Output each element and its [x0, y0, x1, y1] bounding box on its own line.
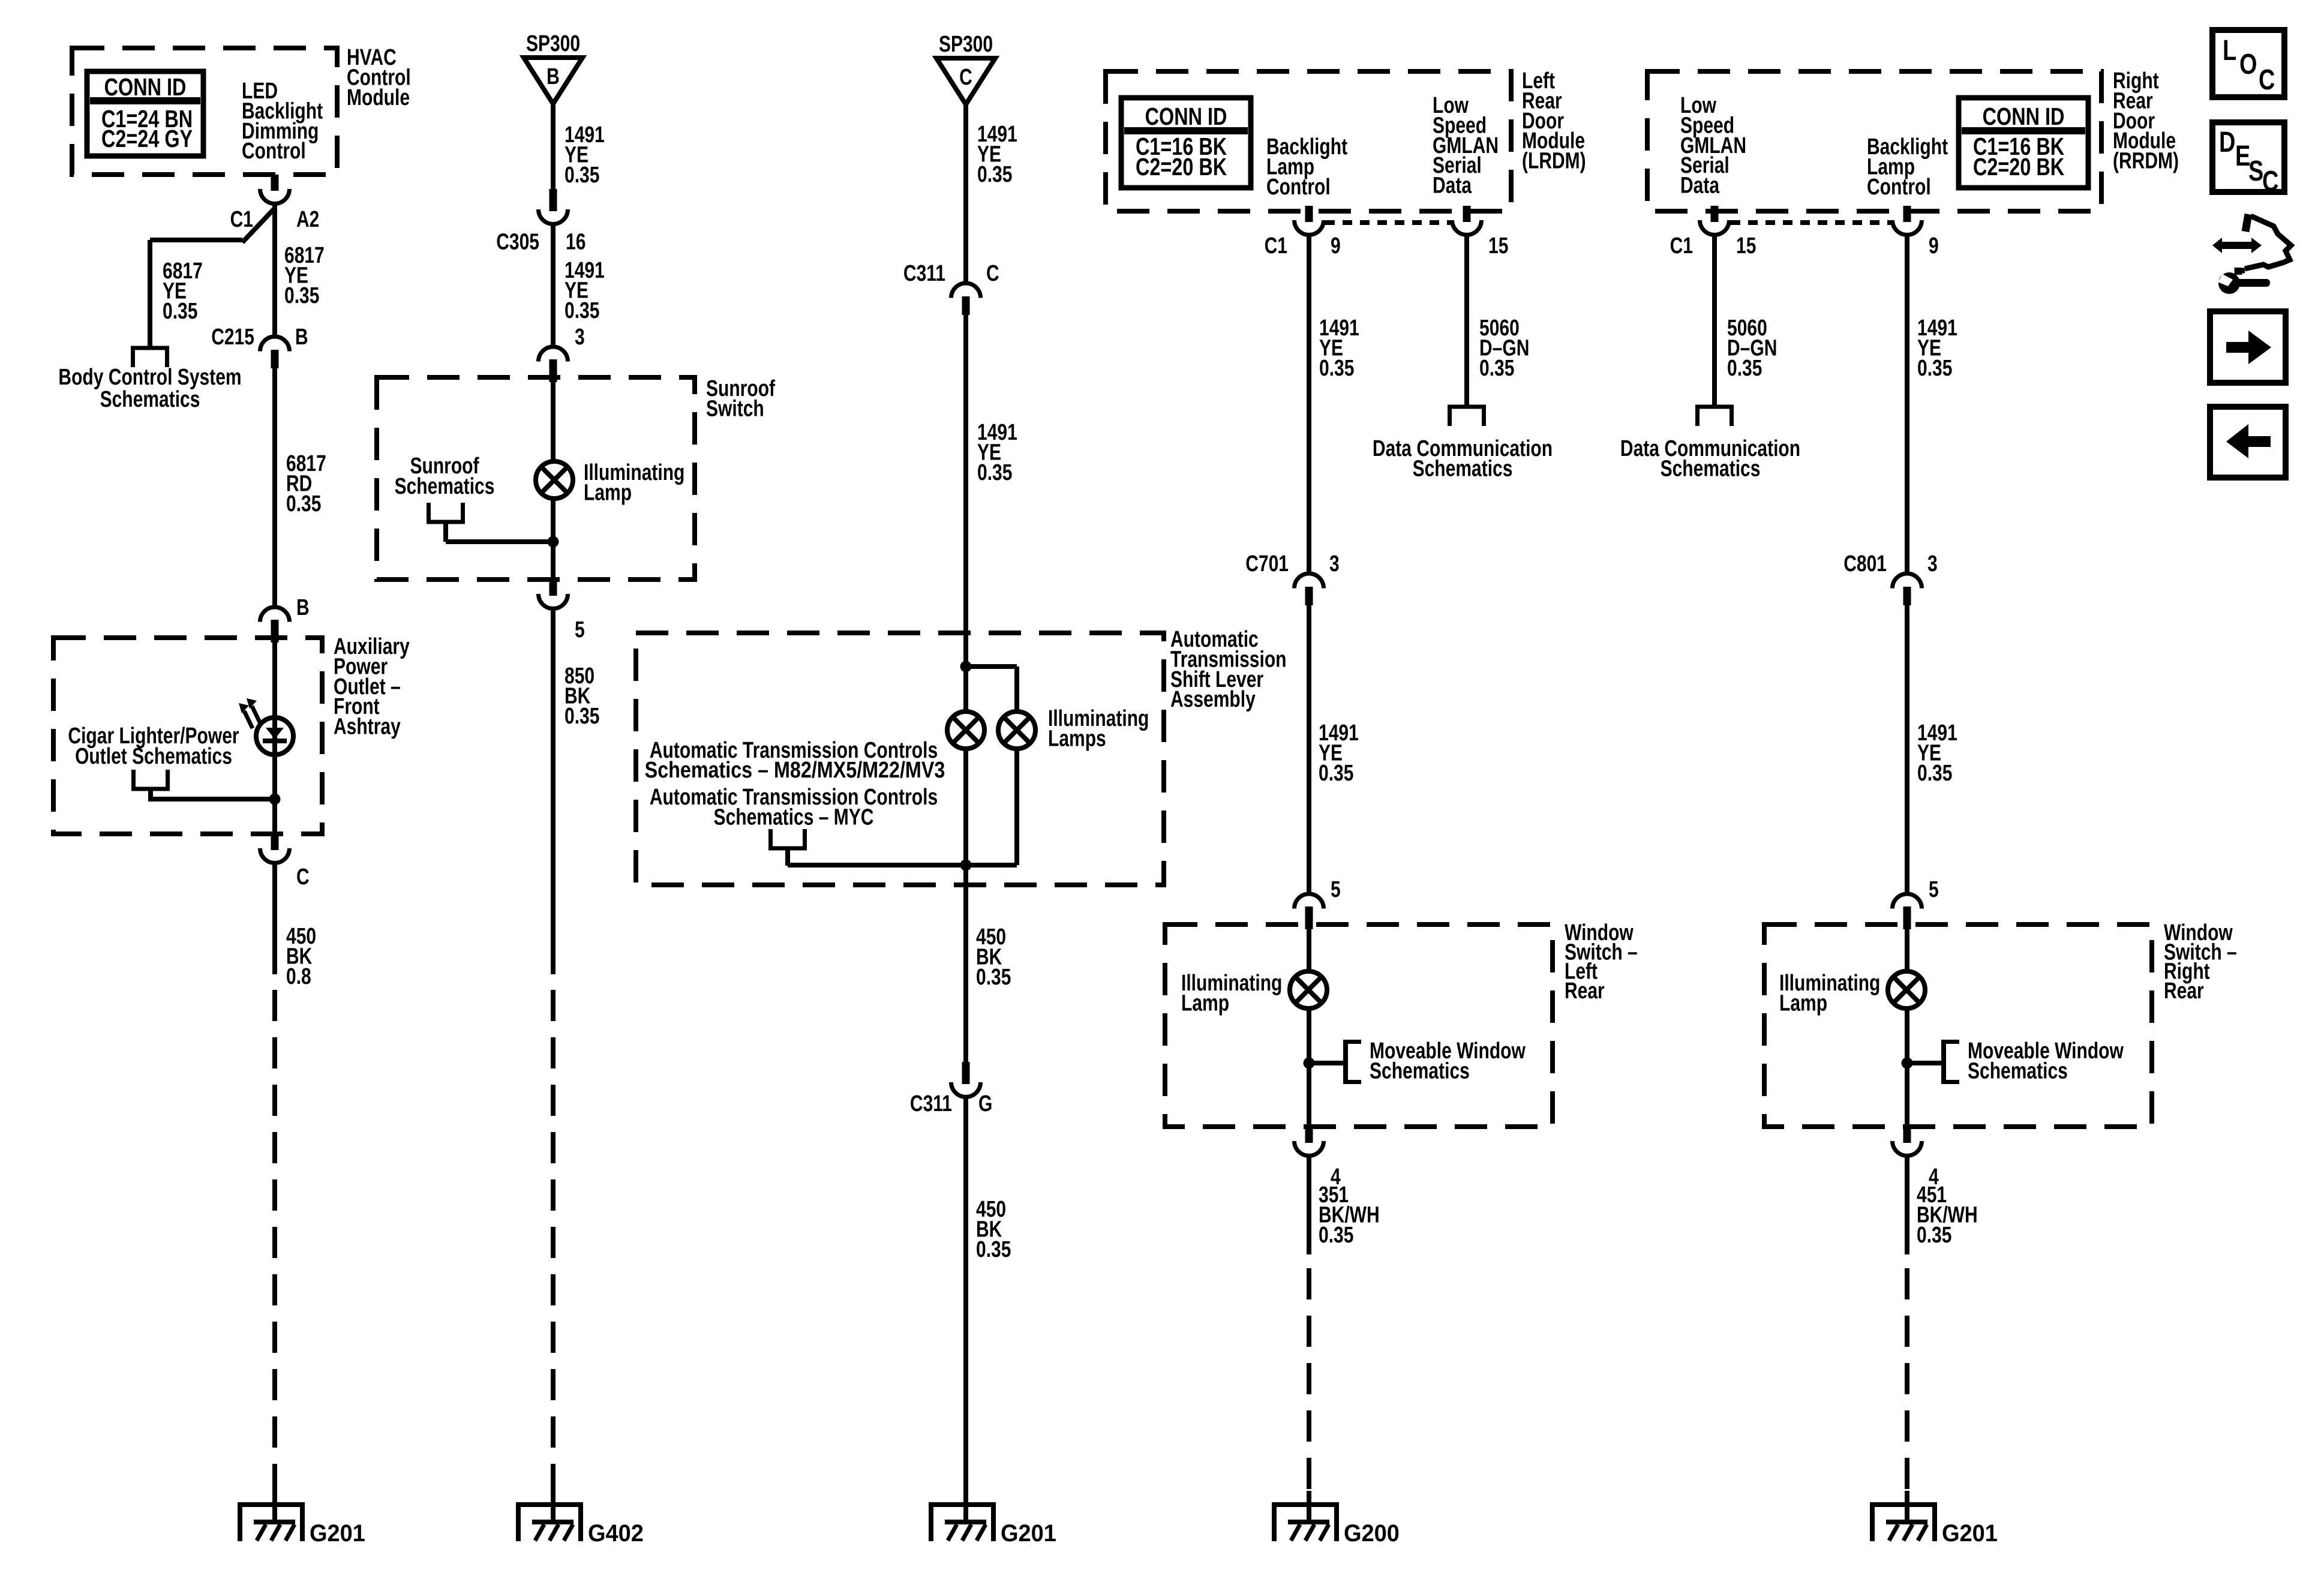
- svg-text:Schematics: Schematics: [395, 474, 495, 499]
- svg-text:0.35: 0.35: [1917, 356, 1952, 381]
- svg-text:3: 3: [1329, 551, 1340, 577]
- svg-text:O: O: [2239, 49, 2257, 80]
- svg-text:Schematics – M82/MX5/M22/MV3: Schematics – M82/MX5/M22/MV3: [645, 758, 945, 783]
- svg-text:Schematics: Schematics: [1413, 456, 1513, 481]
- svg-text:Schematics: Schematics: [1968, 1058, 2068, 1083]
- svg-text:0.35: 0.35: [976, 1237, 1011, 1262]
- svg-text:C1: C1: [1670, 233, 1693, 259]
- svg-text:A2: A2: [296, 207, 319, 232]
- svg-text:CONN ID: CONN ID: [1983, 103, 2065, 130]
- svg-text:5: 5: [1331, 877, 1341, 902]
- svg-text:0.35: 0.35: [976, 965, 1011, 990]
- svg-text:Rear: Rear: [2164, 978, 2204, 1004]
- svg-text:S: S: [2248, 155, 2263, 187]
- svg-text:0.35: 0.35: [565, 298, 599, 323]
- svg-text:Rear: Rear: [1565, 978, 1605, 1004]
- svg-text:0.35: 0.35: [977, 162, 1012, 187]
- svg-text:Data: Data: [1680, 173, 1720, 198]
- svg-text:0.35: 0.35: [565, 704, 599, 729]
- svg-text:G402: G402: [588, 1520, 644, 1547]
- svg-text:0.35: 0.35: [163, 299, 197, 324]
- svg-text:Lamp: Lamp: [1181, 990, 1229, 1016]
- svg-text:9: 9: [1929, 233, 1939, 259]
- svg-text:B: B: [547, 64, 560, 89]
- svg-text:0.35: 0.35: [286, 491, 321, 517]
- svg-text:0.35: 0.35: [1727, 356, 1762, 381]
- svg-text:15: 15: [1488, 233, 1508, 259]
- svg-text:C701: C701: [1245, 551, 1289, 577]
- svg-text:9: 9: [1331, 233, 1341, 259]
- svg-text:0.35: 0.35: [1479, 356, 1514, 381]
- svg-text:Lamp: Lamp: [1779, 990, 1827, 1016]
- svg-text:Outlet Schematics: Outlet Schematics: [75, 744, 232, 769]
- svg-text:Data: Data: [1433, 173, 1472, 198]
- svg-text:C1: C1: [1265, 233, 1287, 259]
- svg-text:C1: C1: [230, 207, 253, 232]
- svg-text:CONN ID: CONN ID: [1145, 103, 1227, 130]
- svg-text:(RRDM): (RRDM): [2113, 148, 2179, 173]
- svg-text:15: 15: [1736, 233, 1756, 259]
- svg-text:C2=20 BK: C2=20 BK: [1136, 153, 1227, 180]
- svg-text:Schematics: Schematics: [1661, 456, 1761, 481]
- svg-text:CONN ID: CONN ID: [104, 73, 187, 100]
- svg-text:Switch: Switch: [706, 396, 764, 421]
- svg-text:C2=20 BK: C2=20 BK: [1973, 153, 2064, 180]
- svg-text:G: G: [978, 1091, 992, 1116]
- svg-text:Control: Control: [1867, 175, 1931, 200]
- svg-text:3: 3: [1927, 551, 1938, 577]
- svg-text:0.35: 0.35: [1319, 761, 1353, 786]
- svg-text:Assembly: Assembly: [1170, 687, 1256, 712]
- svg-text:C: C: [959, 65, 972, 90]
- svg-text:Lamp: Lamp: [584, 480, 632, 505]
- svg-text:C: C: [2262, 166, 2278, 197]
- svg-text:G201: G201: [1001, 1520, 1056, 1547]
- svg-text:0.35: 0.35: [565, 163, 599, 188]
- svg-text:0.35: 0.35: [1319, 356, 1354, 381]
- svg-text:Lamps: Lamps: [1048, 726, 1106, 751]
- svg-text:C: C: [2259, 64, 2275, 96]
- svg-text:0.35: 0.35: [284, 283, 319, 308]
- svg-text:SP300: SP300: [939, 32, 993, 57]
- svg-text:G200: G200: [1344, 1520, 1400, 1547]
- svg-text:Schematics: Schematics: [100, 387, 200, 412]
- svg-text:0.35: 0.35: [1319, 1223, 1353, 1248]
- svg-text:C311: C311: [903, 261, 945, 286]
- svg-text:Schematics – MYC: Schematics – MYC: [714, 804, 874, 830]
- svg-text:C305: C305: [496, 229, 539, 254]
- svg-text:3: 3: [575, 325, 585, 350]
- svg-text:C2=24 GY: C2=24 GY: [101, 125, 193, 152]
- svg-text:C: C: [986, 261, 999, 286]
- svg-text:Ashtray: Ashtray: [334, 714, 401, 739]
- svg-text:Body Control System: Body Control System: [58, 365, 241, 390]
- svg-text:Module: Module: [347, 85, 410, 110]
- svg-text:C311: C311: [910, 1091, 952, 1116]
- svg-text:C: C: [296, 864, 310, 890]
- svg-text:C215: C215: [211, 325, 254, 350]
- svg-text:(LRDM): (LRDM): [1522, 148, 1586, 173]
- svg-text:0.8: 0.8: [286, 964, 311, 989]
- svg-text:L: L: [2223, 35, 2236, 67]
- svg-text:C801: C801: [1843, 551, 1887, 577]
- svg-text:Schematics: Schematics: [1370, 1058, 1470, 1083]
- svg-text:G201: G201: [310, 1520, 365, 1547]
- svg-text:D: D: [2219, 127, 2235, 158]
- svg-text:B: B: [295, 325, 308, 350]
- svg-text:SP300: SP300: [526, 31, 580, 56]
- svg-text:5: 5: [575, 617, 585, 643]
- svg-text:0.35: 0.35: [1917, 761, 1952, 786]
- svg-text:B: B: [296, 595, 310, 620]
- svg-text:G201: G201: [1942, 1520, 1998, 1547]
- svg-text:Control: Control: [1266, 175, 1331, 200]
- svg-text:16: 16: [566, 229, 585, 254]
- svg-text:0.35: 0.35: [977, 460, 1012, 485]
- svg-text:5: 5: [1929, 877, 1939, 902]
- svg-text:Control: Control: [242, 139, 306, 164]
- svg-text:0.35: 0.35: [1917, 1223, 1951, 1248]
